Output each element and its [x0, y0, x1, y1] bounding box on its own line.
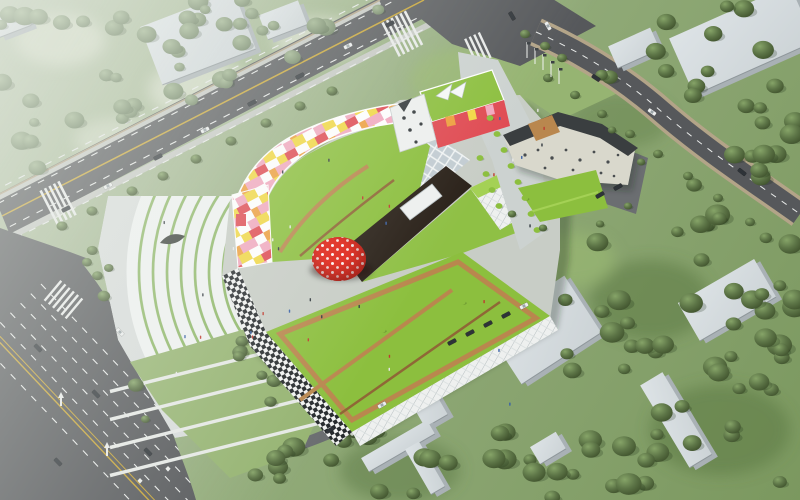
haze-overlay: [0, 0, 800, 500]
scene-canvas: [0, 0, 800, 500]
aerial-rendering: [0, 0, 800, 500]
